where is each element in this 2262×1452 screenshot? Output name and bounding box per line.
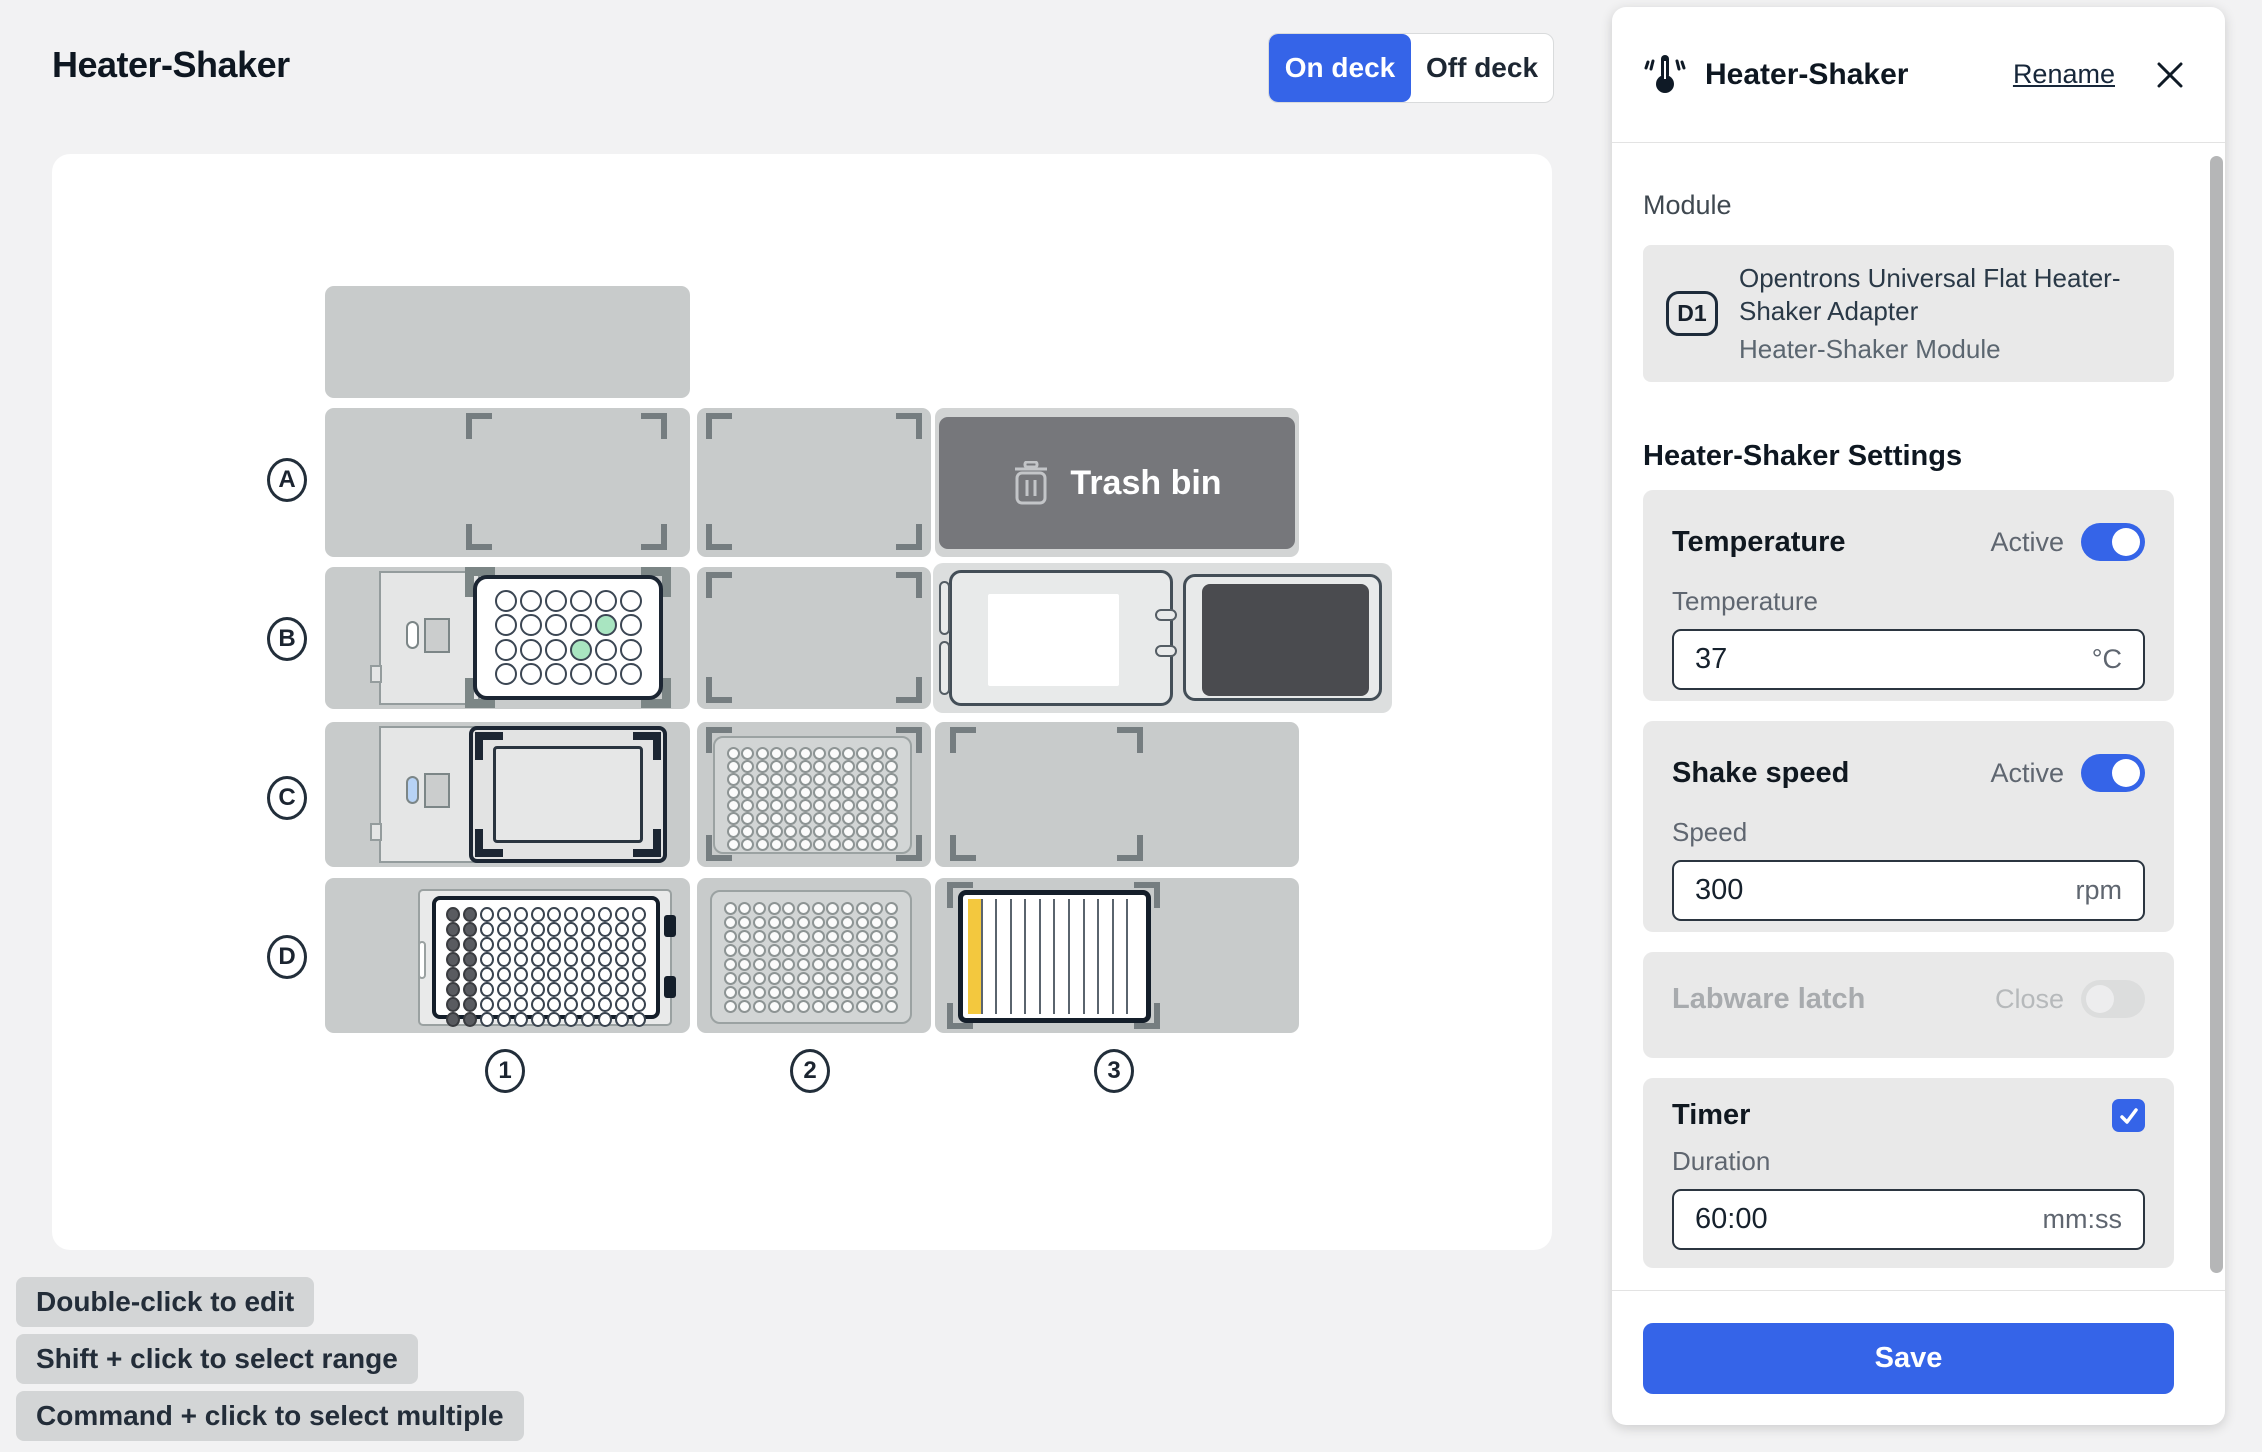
- temperature-state-label: Active: [1990, 527, 2064, 558]
- well: [826, 972, 839, 985]
- well: [632, 937, 646, 952]
- heater-shaker-button: [424, 773, 450, 808]
- slot-d1[interactable]: [325, 878, 690, 1033]
- panel-scrollbar[interactable]: [2210, 156, 2223, 1273]
- shake-toggle[interactable]: [2081, 754, 2145, 792]
- well: [547, 997, 561, 1012]
- rename-link[interactable]: Rename: [2013, 59, 2115, 90]
- save-button[interactable]: Save: [1643, 1323, 2174, 1394]
- well: [738, 972, 751, 985]
- well: [856, 825, 869, 838]
- well: [870, 902, 883, 915]
- well: [463, 922, 477, 937]
- reservoir-channel: [1039, 899, 1054, 1014]
- reservoir-channel: [1053, 899, 1068, 1014]
- temperature-input[interactable]: 37 °C: [1672, 629, 2145, 690]
- well: [784, 786, 797, 799]
- well: [741, 812, 754, 825]
- wellplate-96-labware[interactable]: [432, 896, 660, 1019]
- well: [727, 799, 740, 812]
- well: [620, 663, 642, 685]
- well: [753, 902, 766, 915]
- shake-value: 300: [1695, 874, 1743, 907]
- well: [756, 786, 769, 799]
- well: [768, 944, 781, 957]
- shake-field-label: Speed: [1672, 817, 2145, 848]
- well: [828, 838, 841, 851]
- deck-map: Trash bin: [52, 154, 1552, 1250]
- heater-shaker-module-tab: [370, 665, 382, 683]
- well: [581, 907, 595, 922]
- well: [856, 944, 869, 957]
- well: [768, 972, 781, 985]
- well: [595, 663, 617, 685]
- well: [770, 825, 783, 838]
- well: [598, 967, 612, 982]
- well: [768, 916, 781, 929]
- well: [463, 952, 477, 967]
- well: [841, 916, 854, 929]
- row-label-a: A: [267, 458, 307, 502]
- well: [581, 967, 595, 982]
- reservoir-channel: [1068, 899, 1083, 1014]
- well: [520, 614, 542, 636]
- well: [782, 972, 795, 985]
- well: [856, 916, 869, 929]
- well: [463, 907, 477, 922]
- well: [564, 1012, 578, 1027]
- well: [856, 930, 869, 943]
- well: [480, 1012, 494, 1027]
- checkmark-icon: [2118, 1105, 2140, 1127]
- well: [753, 944, 766, 957]
- close-icon[interactable]: [2153, 58, 2187, 92]
- adapter-name: Opentrons Universal Flat Heater-Shaker A…: [1739, 262, 2156, 328]
- slot-footprint: [950, 727, 1143, 861]
- well: [813, 838, 826, 851]
- well: [495, 614, 517, 636]
- shake-speed-card: Shake speed Active Speed 300 rpm: [1643, 721, 2174, 932]
- well: [885, 799, 898, 812]
- panel-title: Heater-Shaker: [1705, 58, 1908, 92]
- well: [782, 930, 795, 943]
- timer-card: Timer Duration 60:00 mm:ss: [1643, 1078, 2174, 1268]
- well: [497, 967, 511, 982]
- well: [885, 747, 898, 760]
- panel-divider: [1612, 1290, 2225, 1291]
- timer-input[interactable]: 60:00 mm:ss: [1672, 1189, 2145, 1250]
- well: [841, 1000, 854, 1013]
- slot-d2[interactable]: [697, 878, 931, 1033]
- well: [799, 760, 812, 773]
- well: [727, 747, 740, 760]
- well: [632, 907, 646, 922]
- well: [856, 986, 869, 999]
- toggle-knob: [2112, 759, 2140, 787]
- well: [514, 937, 528, 952]
- well: [595, 639, 617, 661]
- well: [497, 907, 511, 922]
- slot-d3[interactable]: [935, 878, 1299, 1033]
- column-label-1: 1: [485, 1049, 525, 1093]
- well: [741, 747, 754, 760]
- well: [564, 937, 578, 952]
- well: [812, 930, 825, 943]
- plate-reader-lid-pad: [1202, 584, 1369, 696]
- reservoir-12-channel-labware[interactable]: [958, 890, 1151, 1023]
- slot-a3-trash[interactable]: Trash bin: [935, 408, 1299, 557]
- well: [841, 902, 854, 915]
- adapter-surface: [493, 746, 643, 843]
- shake-input[interactable]: 300 rpm: [1672, 860, 2145, 921]
- slot-a2[interactable]: [697, 408, 931, 557]
- well: [885, 786, 898, 799]
- well: [870, 1000, 883, 1013]
- well: [531, 1012, 545, 1027]
- well: [632, 1012, 646, 1027]
- well: [724, 1000, 737, 1013]
- well: [885, 825, 898, 838]
- row-label-c: C: [267, 776, 307, 820]
- well: [826, 930, 839, 943]
- well: [564, 997, 578, 1012]
- slot-a1[interactable]: [325, 408, 690, 557]
- well: [581, 922, 595, 937]
- well: [615, 967, 629, 982]
- well: [812, 958, 825, 971]
- well: [770, 747, 783, 760]
- well: [842, 786, 855, 799]
- well: [753, 972, 766, 985]
- well: [570, 663, 592, 685]
- well: [581, 937, 595, 952]
- settings-heading: Heater-Shaker Settings: [1643, 440, 1962, 473]
- well: [782, 944, 795, 957]
- well: [724, 972, 737, 985]
- well: [727, 838, 740, 851]
- well: [885, 760, 898, 773]
- slot-b2[interactable]: [697, 567, 931, 709]
- well: [564, 982, 578, 997]
- well: [770, 786, 783, 799]
- well: [615, 907, 629, 922]
- well: [564, 967, 578, 982]
- well: [828, 773, 841, 786]
- well: [514, 982, 528, 997]
- well: [598, 997, 612, 1012]
- well: [856, 1000, 869, 1013]
- well: [564, 952, 578, 967]
- well: [545, 590, 567, 612]
- well: [615, 997, 629, 1012]
- well: [741, 760, 754, 773]
- well: [581, 952, 595, 967]
- well: [768, 930, 781, 943]
- well: [463, 967, 477, 982]
- well: [615, 952, 629, 967]
- well: [480, 922, 494, 937]
- well: [856, 747, 869, 760]
- well: [520, 639, 542, 661]
- slot-footprint: [706, 413, 922, 550]
- well: [581, 1012, 595, 1027]
- wellplate-24-labware[interactable]: [473, 575, 663, 700]
- well: [813, 825, 826, 838]
- slot-c2[interactable]: [697, 722, 931, 867]
- well: [856, 902, 869, 915]
- well: [842, 838, 855, 851]
- well: [724, 986, 737, 999]
- well: [598, 937, 612, 952]
- well: [753, 916, 766, 929]
- heater-shaker-status-light: [406, 776, 419, 804]
- well: [615, 982, 629, 997]
- well: [547, 952, 561, 967]
- slot-c1-heater-shaker[interactable]: [325, 722, 690, 867]
- slot-c3[interactable]: [935, 722, 1299, 867]
- well: [463, 982, 477, 997]
- slot-b1-heater-shaker[interactable]: [325, 567, 690, 709]
- well: [446, 937, 460, 952]
- trash-bin-label: Trash bin: [1070, 464, 1221, 503]
- well: [828, 812, 841, 825]
- holder-clip: [664, 915, 676, 937]
- temperature-card: Temperature Active Temperature 37 °C: [1643, 490, 2174, 701]
- well: [782, 986, 795, 999]
- well: [547, 922, 561, 937]
- trash-bin[interactable]: Trash bin: [939, 417, 1295, 549]
- timer-checkbox[interactable]: [2112, 1099, 2145, 1132]
- wellplate-96-labware[interactable]: [713, 736, 912, 854]
- well: [531, 922, 545, 937]
- well: [826, 944, 839, 957]
- well: [770, 760, 783, 773]
- well: [446, 967, 460, 982]
- tab-off-deck[interactable]: Off deck: [1411, 34, 1553, 102]
- module-name: Heater-Shaker Module: [1739, 334, 2156, 365]
- well: [813, 799, 826, 812]
- well: [784, 747, 797, 760]
- well: [812, 916, 825, 929]
- timer-unit: mm:ss: [2043, 1204, 2122, 1235]
- well: [756, 760, 769, 773]
- well: [812, 902, 825, 915]
- well: [595, 590, 617, 612]
- timer-field-label: Duration: [1672, 1146, 2145, 1177]
- holder-clip: [664, 976, 676, 998]
- well: [598, 922, 612, 937]
- well: [885, 986, 898, 999]
- well: [632, 982, 646, 997]
- well: [724, 944, 737, 957]
- well: [756, 838, 769, 851]
- well: [813, 786, 826, 799]
- well: [826, 916, 839, 929]
- module-section-label: Module: [1643, 190, 1732, 221]
- well: [799, 773, 812, 786]
- shake-state-label: Active: [1990, 758, 2064, 789]
- well: [871, 825, 884, 838]
- well: [531, 907, 545, 922]
- well: [520, 590, 542, 612]
- tab-on-deck[interactable]: On deck: [1269, 34, 1411, 102]
- temperature-field-label: Temperature: [1672, 586, 2145, 617]
- well: [842, 812, 855, 825]
- well: [615, 922, 629, 937]
- reservoir-channel: [981, 899, 996, 1014]
- slot-footprint: [466, 413, 667, 550]
- well: [581, 982, 595, 997]
- well: [756, 773, 769, 786]
- well: [738, 902, 751, 915]
- reservoir-channel: [1097, 899, 1112, 1014]
- plate-reader-hinge: [939, 581, 950, 635]
- well: [782, 1000, 795, 1013]
- well: [514, 997, 528, 1012]
- well: [753, 1000, 766, 1013]
- reservoir-channel: [1083, 899, 1098, 1014]
- well: [446, 907, 460, 922]
- well: [531, 997, 545, 1012]
- well: [632, 922, 646, 937]
- well: [620, 639, 642, 661]
- well: [770, 799, 783, 812]
- well: [799, 786, 812, 799]
- well: [885, 773, 898, 786]
- well: [620, 614, 642, 636]
- well: [756, 799, 769, 812]
- well: [841, 944, 854, 957]
- well: [463, 1012, 477, 1027]
- hint-double-click: Double-click to edit: [16, 1277, 314, 1327]
- temperature-unit: °C: [2092, 644, 2122, 675]
- well: [841, 958, 854, 971]
- well: [753, 958, 766, 971]
- well: [514, 922, 528, 937]
- well: [514, 967, 528, 982]
- well: [598, 1012, 612, 1027]
- well: [446, 952, 460, 967]
- well: [738, 958, 751, 971]
- well: [738, 916, 751, 929]
- well: [871, 786, 884, 799]
- well: [784, 838, 797, 851]
- universal-flat-adapter-labware[interactable]: [469, 726, 667, 863]
- well: [531, 952, 545, 967]
- well: [871, 747, 884, 760]
- well: [797, 930, 810, 943]
- well: [727, 812, 740, 825]
- well: [564, 907, 578, 922]
- temperature-toggle[interactable]: [2081, 523, 2145, 561]
- well: [497, 937, 511, 952]
- timer-title: Timer: [1672, 1099, 1750, 1132]
- trash-icon: [1012, 461, 1050, 505]
- well: [727, 760, 740, 773]
- well: [812, 1000, 825, 1013]
- well: [768, 958, 781, 971]
- well: [520, 663, 542, 685]
- well: [856, 760, 869, 773]
- well: [753, 986, 766, 999]
- well: [813, 760, 826, 773]
- well: [564, 922, 578, 937]
- well: [727, 786, 740, 799]
- heater-shaker-module-tab: [370, 823, 382, 841]
- wellplate-96-labware[interactable]: [710, 890, 912, 1024]
- well: [826, 902, 839, 915]
- well: [768, 986, 781, 999]
- well: [547, 982, 561, 997]
- well: [531, 982, 545, 997]
- well: [828, 825, 841, 838]
- column-label-3: 3: [1094, 1049, 1134, 1093]
- heater-shaker-status-light: [406, 621, 419, 649]
- well: [797, 958, 810, 971]
- well: [799, 838, 812, 851]
- page-title: Heater-Shaker: [52, 44, 290, 86]
- heater-shaker-button: [424, 618, 450, 653]
- well: [885, 902, 898, 915]
- well: [724, 902, 737, 915]
- latch-state-label: Close: [1995, 984, 2064, 1015]
- well: [753, 930, 766, 943]
- well: [497, 952, 511, 967]
- well: [799, 747, 812, 760]
- well: [570, 614, 592, 636]
- well: [856, 838, 869, 851]
- well: [495, 663, 517, 685]
- well: [871, 760, 884, 773]
- well: [784, 812, 797, 825]
- well: [842, 825, 855, 838]
- well: [620, 590, 642, 612]
- well: [784, 760, 797, 773]
- well: [480, 982, 494, 997]
- well: [531, 937, 545, 952]
- well: [885, 944, 898, 957]
- well: [738, 930, 751, 943]
- reservoir-channel: [995, 899, 1010, 1014]
- toggle-knob: [2112, 528, 2140, 556]
- well: [724, 930, 737, 943]
- latch-title: Labware latch: [1672, 983, 1865, 1016]
- well: [797, 972, 810, 985]
- well: [741, 825, 754, 838]
- plate-reader-lid: [1183, 574, 1382, 701]
- column-label-2: 2: [790, 1049, 830, 1093]
- well: [797, 916, 810, 929]
- well: [598, 982, 612, 997]
- reservoir-channel: [1010, 899, 1025, 1014]
- well: [856, 958, 869, 971]
- plate-reader-module[interactable]: [933, 563, 1392, 713]
- well: [756, 812, 769, 825]
- plate-reader-body: [949, 570, 1173, 706]
- well: [480, 997, 494, 1012]
- well: [768, 1000, 781, 1013]
- well: [828, 799, 841, 812]
- well: [841, 986, 854, 999]
- well: [446, 1012, 460, 1027]
- plate-reader-hinge: [939, 641, 950, 695]
- well: [856, 812, 869, 825]
- well: [842, 799, 855, 812]
- timer-value: 60:00: [1695, 1203, 1768, 1236]
- well: [812, 944, 825, 957]
- well: [756, 825, 769, 838]
- well: [812, 986, 825, 999]
